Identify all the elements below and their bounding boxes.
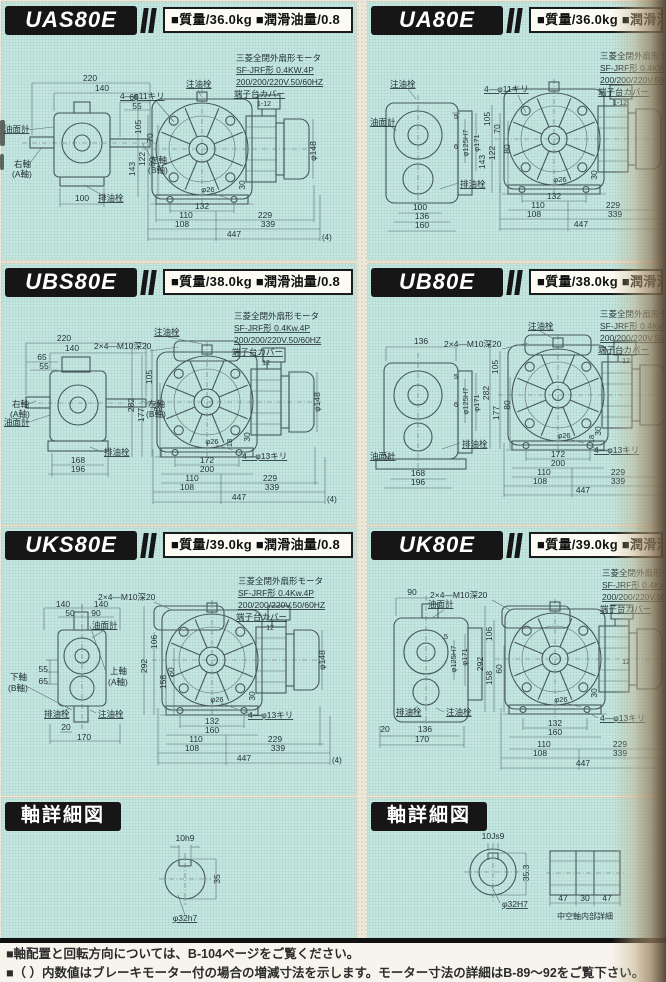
dim-label: 160 [205, 725, 219, 735]
dim-label: SF-JRF形 0.4Kw.4P [600, 321, 664, 331]
section-uk80e: UK80E ■質量/39.0kg ■潤滑油量/0.8 [368, 527, 666, 795]
dim-label: 108 [185, 743, 199, 753]
dim-label: 下軸 [10, 672, 27, 682]
dim-label: 油面計 [4, 124, 30, 134]
dim-label: 282 [481, 386, 491, 400]
dim-label: 108 [527, 209, 541, 219]
dim-label: φ32h7 [173, 913, 198, 923]
model-badge: UKS80E [5, 531, 137, 560]
spec-box: ■質量/39.0kg ■潤滑油量/0.8 [529, 532, 663, 558]
dim-label: 339 [271, 743, 285, 753]
dim-label: 105 [144, 370, 154, 384]
section-header: UBS80E ■質量/38.0kg ■潤滑油量/0.8 [2, 264, 356, 297]
dim-label: 5 [444, 632, 448, 641]
dim-label: 上軸 [110, 666, 127, 676]
dim-label: 2×4—M10深20 [444, 339, 502, 349]
model-badge: UA80E [371, 6, 503, 35]
dim-label: 105 [490, 360, 500, 374]
front-view [132, 337, 325, 504]
dim-label: (B軸) [8, 683, 28, 693]
section-header: 軸詳細図 [2, 798, 356, 831]
dim-label: 105 [482, 112, 492, 126]
section-header: UA80E ■質量/36.0kg ■潤滑油量/0.8 [368, 2, 666, 35]
model-badge: UB80E [371, 268, 503, 297]
dim-label: 30 [242, 432, 252, 442]
dim-label: 油面計 [370, 451, 396, 461]
dim-label: 447 [227, 229, 241, 239]
section-uks80e: UKS80E ■質量/39.0kg ■潤滑油量/0.8 [2, 527, 356, 795]
dim-label: 端子台カバー [234, 89, 285, 99]
dim-label: 三菱全閉外扇形モータ [234, 311, 319, 321]
dim-label: 30 [593, 426, 603, 436]
section-ua80e: UA80E ■質量/36.0kg ■潤滑油量/0.8 [368, 2, 666, 260]
dim-label: 排油栓 [44, 709, 70, 719]
scan-smudge [0, 120, 5, 146]
dim-label: 160 [415, 220, 429, 230]
dim-label: 122 [137, 152, 147, 166]
dim-label: 4—φ11キリ [484, 84, 529, 94]
dim-label: 108 [533, 476, 547, 486]
dim-label: 140 [65, 343, 79, 353]
dim-label: 50 [65, 608, 75, 618]
model-label: UKS80E [25, 532, 117, 557]
dim-label: φ148 [317, 650, 327, 670]
dim-label: 292 [139, 659, 149, 673]
shaft-detail-title: 軸詳細図 [371, 802, 487, 831]
dim-label: 60 [494, 664, 504, 674]
dim-label: 200 [551, 458, 565, 468]
dim-label: 143 [477, 155, 487, 169]
dim-label: 35.3 [521, 864, 531, 881]
dim-label: 18 [225, 439, 234, 447]
ubs80e-drawing: 2201406555油面計右軸(A軸)左軸(B軸)排油栓1681962×4—M1… [2, 297, 356, 525]
dim-label: 30 [589, 688, 599, 698]
dim-label: 65 [39, 676, 49, 686]
dim-label: 三菱全閉外扇形モータ [236, 53, 321, 63]
dim-label: 注油栓 [154, 327, 180, 337]
dim-label: 端子台カバー [236, 612, 287, 622]
dim-label: 4—φ13キリ [594, 445, 639, 455]
dim-label: 油面計 [92, 620, 118, 630]
dim-label: 200/200/220V.50/60HZ [238, 600, 325, 610]
dim-label: SF-JRF形 0.4Kw.4P [238, 588, 314, 598]
dim-label: 122 [487, 146, 497, 160]
dim-label: 注油栓 [528, 321, 554, 331]
dim-label: φ171 [472, 134, 481, 151]
dim-label: 5 [454, 112, 458, 121]
dim-label: 油面計 [428, 599, 454, 609]
section-header: 軸詳細図 [368, 798, 666, 831]
model-badge: UK80E [371, 531, 503, 560]
dim-label: 80 [152, 402, 162, 412]
dim-label: 油面計 [370, 117, 396, 127]
shaft-detail-b-drawing: 10Js935.3φ32H7473047中空軸内部詳細 [368, 831, 664, 937]
dim-label: 55 [39, 664, 49, 674]
dim-label: 右軸 [14, 159, 31, 169]
dim-label: φ32H7 [502, 899, 528, 909]
section-shaft-detail-b: 軸詳細図 10Js935.3φ32H7473047中空軸内部詳細 [368, 798, 666, 938]
dim-label: 140 [95, 83, 109, 93]
dim-label: 30 [589, 170, 599, 180]
dim-label: (A軸) [10, 409, 30, 419]
dim-label: φ148 [312, 392, 322, 412]
footer-note-1: ■軸配置と回転方向については、B-104ページをご覧ください。 [6, 946, 666, 962]
uas80e-drawing: 2201406555油面計右軸(A軸)左軸(B軸)排油栓1004—φ11キリ注油… [2, 35, 356, 261]
spec-box: ■質量/36.0kg ■潤滑油量/0.8 [529, 7, 663, 33]
divider-bars-icon [508, 270, 524, 295]
dim-label: 106 [484, 627, 494, 641]
divider-bars-icon [508, 533, 524, 558]
dim-label: 20 [61, 722, 71, 732]
dim-label: 292 [475, 657, 485, 671]
dim-label: 中空軸内部詳細 [557, 911, 613, 921]
dim-label: 447 [574, 219, 588, 229]
dim-label: 12 [262, 360, 270, 367]
dim-label: 端子台カバー [598, 345, 649, 355]
section-header: UAS80E ■質量/36.0kg ■潤滑油量/0.8 [2, 2, 356, 35]
dim-label: 282 [126, 398, 136, 412]
dim-label: 136 [414, 336, 428, 346]
divider-bars-icon [142, 270, 158, 295]
dim-label: 4—φ13キリ [600, 713, 645, 723]
dim-label: 160 [548, 727, 562, 737]
dim-label: φ171 [460, 648, 469, 665]
dim-label: 220 [57, 333, 71, 343]
footer-note-2: ■（ ）内数値はブレーキモーター付の場合の増減寸法を示します。モーター寸法の詳細… [6, 965, 666, 981]
model-label: UB80E [399, 269, 475, 294]
dim-label: (4) [332, 756, 342, 765]
dim-label: φ125H7 [461, 388, 470, 415]
dim-label: 108 [175, 219, 189, 229]
hollow-shaft-section [464, 843, 624, 906]
dim-label: 200/200/220V.50/60HZ [236, 77, 323, 87]
dim-label: 200 [200, 464, 214, 474]
catalog-page: UAS80E ■質量/36.0kg ■潤滑油量/0.8 [0, 0, 666, 982]
dim-label: 106 [149, 635, 159, 649]
dim-label: 132 [195, 201, 209, 211]
dim-label: 注油栓 [98, 709, 124, 719]
dim-label: 136 [418, 724, 432, 734]
dim-label: 70 [492, 124, 502, 134]
dim-label: 端子台カバー [232, 347, 283, 357]
dim-label: 12 [622, 358, 630, 365]
ub80e-drawing: 1365φ125H7φ1716排油栓油面計1681962×4—M10深20注油栓… [368, 297, 664, 525]
dim-label: SF-JRF形 0.4Kw.4P [602, 580, 664, 590]
section-shaft-detail-a: 軸詳細図 10h935φ32h7 [2, 798, 356, 938]
dim-label: φ26 [201, 185, 214, 194]
dim-label: 339 [608, 209, 622, 219]
front-view [485, 599, 664, 770]
dim-label: 1-12 [613, 100, 627, 107]
section-uas80e: UAS80E ■質量/36.0kg ■潤滑油量/0.8 [2, 2, 356, 260]
dim-label: 200/200/220V.50/60HZ [602, 592, 664, 602]
dim-label: 108 [533, 748, 547, 758]
model-badge: UBS80E [5, 268, 137, 297]
front-view [144, 600, 330, 765]
dim-label: 排油栓 [460, 179, 486, 189]
section-ub80e: UB80E ■質量/38.0kg ■潤滑油量/0.8 [368, 264, 666, 524]
dim-label: 196 [411, 477, 425, 487]
dim-label: 108 [180, 482, 194, 492]
dim-label: 端子台カバー [598, 87, 649, 97]
dim-label: 注油栓 [186, 79, 212, 89]
spec-box: ■質量/39.0kg ■潤滑油量/0.8 [163, 532, 353, 558]
dim-label: (4) [322, 233, 332, 242]
dim-label: 90 [91, 608, 101, 618]
model-badge: UAS80E [5, 6, 137, 35]
dim-label: 105 [133, 120, 143, 134]
dim-label: 132 [547, 191, 561, 201]
dim-label: 右軸 [12, 399, 29, 409]
model-label: UAS80E [25, 7, 117, 32]
dim-label: 47 [558, 893, 568, 903]
dim-label: SF-JRF形 0.4Kw.4P [234, 323, 310, 333]
flange-view [386, 89, 476, 231]
scan-smudge [0, 154, 4, 170]
dim-label: 30 [247, 691, 257, 701]
dim-label: SF-JRF形 0.4KW.4P [236, 65, 314, 75]
dim-label: 60 [166, 667, 176, 677]
dim-label: 三菱全閉外扇形モータ [238, 576, 323, 586]
dim-label: 447 [237, 753, 251, 763]
shaft-section [159, 845, 216, 915]
dim-label: 4—φ13キリ [248, 710, 293, 720]
shaft-detail-title: 軸詳細図 [5, 802, 121, 831]
dim-label: 三菱全閉外扇形モータ [600, 51, 664, 61]
shaft-detail-a-drawing: 10h935φ32h7 [2, 831, 356, 937]
dim-label: 80 [502, 144, 512, 154]
model-label: UK80E [399, 532, 475, 557]
dim-label: 339 [261, 219, 275, 229]
dim-label: 2×4—M10深20 [98, 592, 156, 602]
dim-label: 注油栓 [390, 79, 416, 89]
dim-label: 10Js9 [482, 831, 505, 841]
dim-label: 143 [127, 162, 137, 176]
dim-label: 177 [491, 406, 501, 420]
dim-label: SF-JRF形 0.4KW.4P [600, 63, 664, 73]
dim-label: 200/200/220V.50/60HZ [600, 75, 664, 85]
dim-label: (A軸) [12, 169, 32, 179]
flange-view [376, 347, 476, 488]
dim-label: 20 [380, 724, 390, 734]
dim-label: (4) [327, 495, 337, 504]
dim-label: 排油栓 [396, 707, 422, 717]
dim-label: 70 [145, 133, 155, 143]
dim-label: 6 [454, 400, 458, 409]
dim-label: (A軸) [108, 677, 128, 687]
dim-label: 2×4—M10深20 [94, 341, 152, 351]
dim-label: φ148 [308, 141, 318, 161]
section-ubs80e: UBS80E ■質量/38.0kg ■潤滑油量/0.8 [2, 264, 356, 524]
dim-label: 447 [232, 492, 246, 502]
dim-label: 80 [502, 400, 512, 410]
dim-label: 18 [587, 435, 596, 443]
dim-label: 10h9 [176, 833, 195, 843]
model-label: UA80E [399, 7, 475, 32]
front-view [492, 79, 664, 231]
uk80e-drawing: 90油面計5φ125H7φ171排油栓注油栓201361702×4—M10深20… [368, 560, 664, 796]
dim-label: 35 [212, 874, 222, 884]
dim-label: φ171 [472, 394, 481, 411]
dim-label: 47 [602, 893, 612, 903]
dim-label: 200/200/220V.50/60HZ [234, 335, 321, 345]
dim-label: 196 [71, 464, 85, 474]
section-header: UKS80E ■質量/39.0kg ■潤滑油量/0.8 [2, 527, 356, 560]
dim-label: 447 [576, 485, 590, 495]
dim-label: 1-12 [257, 101, 271, 108]
dim-label: φ125H7 [461, 130, 470, 157]
dim-label: 339 [611, 476, 625, 486]
dim-label: φ26 [557, 431, 570, 440]
dim-label: 排油栓 [98, 193, 124, 203]
spec-box: ■質量/38.0kg ■潤滑油量/0.8 [529, 269, 663, 295]
dim-label: φ26 [554, 695, 567, 704]
ua80e-drawing: 注油栓油面計5φ125H7φ1716排油栓1001361604—φ11キリ三菱全… [368, 35, 664, 261]
dim-label: 447 [576, 758, 590, 768]
dim-label: 200/200/220V.50/60HZ [600, 333, 664, 343]
dim-label: φ125H7 [449, 646, 458, 673]
dim-label: 100 [75, 193, 89, 203]
spec-box: ■質量/38.0kg ■潤滑油量/0.8 [163, 269, 353, 295]
dim-label: 60 [147, 157, 157, 167]
dim-label: 6 [454, 142, 458, 151]
dim-label: 排油栓 [462, 439, 488, 449]
dim-label: 158 [484, 671, 494, 685]
dim-label: 220 [83, 73, 97, 83]
front-view [490, 331, 664, 497]
section-header: UK80E ■質量/39.0kg ■潤滑油量/0.8 [368, 527, 666, 560]
dim-label: 端子台カバー [600, 604, 651, 614]
dim-label: 55 [39, 361, 49, 371]
dim-label: 三菱全閉外扇形モータ [600, 309, 664, 319]
dim-label: 三菱全閉外扇形モータ [602, 568, 664, 578]
dim-label: φ26 [553, 175, 566, 184]
model-label: UBS80E [25, 269, 117, 294]
dim-label: 5 [454, 372, 458, 381]
dim-label: 4—φ11キリ [120, 91, 165, 101]
divider-bars-icon [508, 8, 524, 33]
dim-label: φ26 [210, 695, 223, 704]
dim-label: 339 [265, 482, 279, 492]
dim-label: 170 [77, 732, 91, 742]
divider-bars-icon [142, 533, 158, 558]
dim-label: 注油栓 [446, 707, 472, 717]
uks80e-drawing: 1401405090油面計5565下軸(B軸)上軸(A軸)排油栓注油栓20170… [2, 560, 356, 796]
dim-label: 170 [415, 734, 429, 744]
section-header: UB80E ■質量/38.0kg ■潤滑油量/0.8 [368, 264, 666, 297]
dim-label: 12 [266, 625, 274, 632]
dim-label: 12 [622, 659, 630, 666]
dim-label: 90 [407, 587, 417, 597]
dim-label: 177 [136, 408, 146, 422]
dim-label: 2×4—M10深20 [430, 590, 488, 600]
divider-bars-icon [142, 8, 158, 33]
dim-label: 339 [613, 748, 627, 758]
dim-label: 4—φ13キリ [242, 451, 287, 461]
dim-label: 30 [237, 180, 247, 190]
dim-label: φ26 [205, 437, 218, 446]
spec-box: ■質量/36.0kg ■潤滑油量/0.8 [163, 7, 353, 33]
footer-notes: ■軸配置と回転方向については、B-104ページをご覧ください。 ■（ ）内数値は… [0, 938, 666, 982]
dim-label: 55 [132, 101, 142, 111]
dim-label: 排油栓 [104, 447, 130, 457]
dim-label: 30 [580, 893, 590, 903]
